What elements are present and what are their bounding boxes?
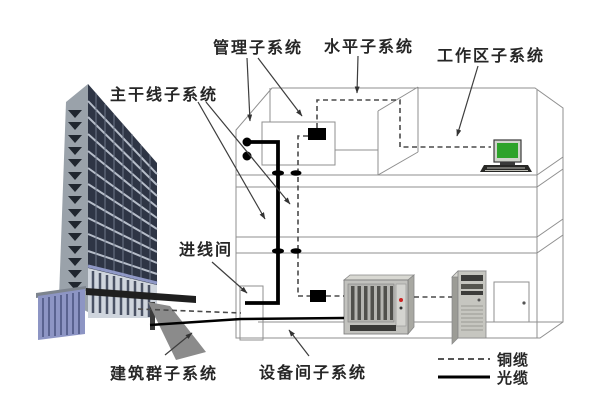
management-arrow-2 xyxy=(258,58,302,116)
cabling xyxy=(138,100,491,325)
rack-side xyxy=(408,275,414,334)
rack-vent xyxy=(350,325,396,331)
slab2-top-line xyxy=(236,219,563,237)
door-knob xyxy=(522,301,525,304)
management-patch-panel xyxy=(308,128,326,140)
fiber-riser xyxy=(245,142,278,303)
entrance-room-box xyxy=(240,286,263,340)
entrance-arrow xyxy=(212,262,247,293)
horizontal-arrow xyxy=(357,56,358,93)
rack-red-indicator xyxy=(399,298,403,302)
tower-front xyxy=(458,271,486,338)
fiber-terminal-dot-1 xyxy=(243,138,252,147)
rack-control-panel xyxy=(396,284,406,326)
work-area-arrow xyxy=(457,66,478,136)
label-backbone-subsystem: 主干线子系统 xyxy=(110,85,218,104)
tower-drive-bay-2 xyxy=(461,284,483,289)
annex-louvers xyxy=(43,292,79,337)
rack-top xyxy=(344,275,414,280)
label-equipment-room-subsystem: 设备间子系统 xyxy=(259,363,367,382)
rack-button xyxy=(400,307,403,310)
riser-bushing xyxy=(272,248,284,254)
management-arrow-1 xyxy=(247,58,250,121)
monitor-screen xyxy=(497,143,518,158)
legend-copper-label: 铜缆 xyxy=(497,351,529,369)
structured-cabling-diagram: 管理子系统 水平子系统 工作区子系统 主干线子系统 进线间 建筑群子系统 设备间… xyxy=(0,0,600,400)
tower-drive-bay-1 xyxy=(461,275,483,281)
riser-bushing xyxy=(272,170,284,176)
label-work-area-subsystem: 工作区子系统 xyxy=(437,46,545,65)
riser-bushing xyxy=(291,248,302,254)
label-campus-subsystem: 建筑群子系统 xyxy=(110,364,218,383)
tower-side xyxy=(452,271,458,344)
monitor-stand xyxy=(500,162,515,165)
tower-vents xyxy=(461,306,483,330)
ground-ramp xyxy=(148,302,206,360)
riser-bushing xyxy=(291,170,302,176)
server-tower xyxy=(452,271,486,344)
label-management-subsystem: 管理子系统 xyxy=(213,38,303,57)
legend: 铜缆 光缆 xyxy=(438,351,529,387)
equipment-patch-panel xyxy=(310,290,326,302)
copper-riser xyxy=(298,136,310,296)
diagram-canvas: 管理子系统 水平子系统 工作区子系统 主干线子系统 进线间 建筑群子系统 设备间… xyxy=(0,0,600,400)
office-building xyxy=(36,84,206,360)
label-horizontal-subsystem: 水平子系统 xyxy=(324,37,414,56)
horizontal-copper-run xyxy=(317,100,491,147)
tower-power-button xyxy=(478,299,481,302)
label-entrance-room: 进线间 xyxy=(179,240,233,259)
slab2-bottom-line xyxy=(236,235,563,253)
legend-fiber-label: 光缆 xyxy=(496,369,529,387)
tower-drive-bay-3 xyxy=(461,291,483,295)
network-rack xyxy=(344,275,414,334)
equipment-arrow xyxy=(289,330,309,356)
workstation-computer xyxy=(480,140,532,172)
